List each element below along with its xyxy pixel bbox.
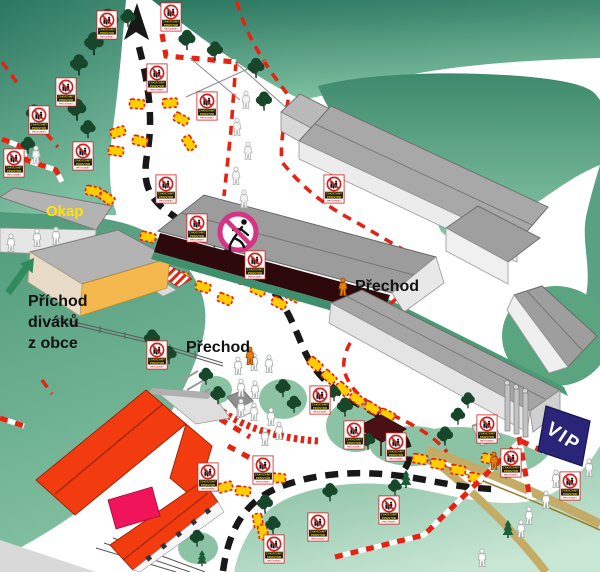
no-spectators-sign <box>147 341 167 369</box>
no-spectators-sign <box>253 456 273 484</box>
no-spectators-sign <box>56 78 76 106</box>
no-spectators-sign <box>308 513 328 541</box>
no-spectators-sign <box>73 142 93 170</box>
no-spectators-sign <box>156 175 176 203</box>
hay-bale <box>129 99 145 109</box>
no-spectators-sign <box>197 92 217 120</box>
hay-bale <box>162 98 178 108</box>
no-spectators-sign <box>310 386 330 414</box>
no-spectators-sign <box>97 11 117 39</box>
label-prichod-line1: Příchod <box>28 293 88 310</box>
no-spectators-sign <box>29 106 49 134</box>
label-okap: Okap <box>46 203 84 220</box>
label-prechod-left: Přechod <box>186 339 250 356</box>
no-spectators-sign <box>386 433 406 461</box>
no-spectators-sign <box>147 64 167 92</box>
no-spectators-sign <box>560 472 580 500</box>
no-spectators-sign <box>4 149 24 177</box>
no-spectators-sign <box>501 449 521 477</box>
no-spectators-sign <box>477 415 497 443</box>
pillars <box>505 381 529 438</box>
label-prichod-line3: z obce <box>28 335 78 352</box>
no-spectators-sign <box>379 496 399 524</box>
map-canvas: ZAKÁZANÝ PROSTOR PRO DIVÁKY <box>0 0 600 572</box>
no-spectators-sign <box>161 3 181 31</box>
event-site-map: ZAKÁZANÝ PROSTOR PRO DIVÁKY <box>0 0 600 572</box>
label-prechod-right: Přechod <box>355 278 419 295</box>
hay-bale <box>235 486 251 497</box>
no-spectators-sign <box>187 214 207 242</box>
no-spectators-sign <box>324 175 344 203</box>
label-prichod-line2: diváků <box>28 314 79 331</box>
no-spectators-sign <box>245 251 265 279</box>
no-spectators-sign <box>264 535 284 563</box>
no-crossing-sign <box>220 214 256 250</box>
no-spectators-sign <box>198 463 218 491</box>
no-spectators-sign <box>344 421 364 449</box>
